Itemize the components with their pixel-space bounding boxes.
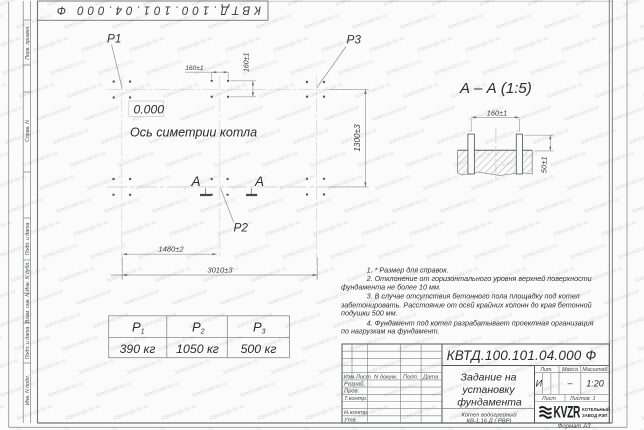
svg-text:KVZR: KVZR <box>554 403 581 421</box>
svg-text:Инв. N дубл.: Инв. N дубл. <box>25 261 31 291</box>
svg-text:160±1: 160±1 <box>243 52 250 72</box>
svg-text:Листов: Листов <box>569 396 590 402</box>
svg-text:Изм.Лист: Изм.Лист <box>344 374 371 380</box>
svg-text:Разраб.: Разраб. <box>344 382 365 388</box>
svg-text:Инв. N подл.: Инв. N подл. <box>25 375 31 405</box>
svg-text:А: А <box>191 174 201 189</box>
svg-text:1050 кг: 1050 кг <box>176 342 219 356</box>
svg-text:КВТД.100.101.04.000 Ф: КВТД.100.101.04.000 Ф <box>53 4 261 16</box>
svg-text:И: И <box>536 379 543 389</box>
svg-text:Подп.: Подп. <box>403 374 418 380</box>
svg-text:0.000: 0.000 <box>134 103 165 117</box>
svg-text:Подп. и дата: Подп. и дата <box>25 223 31 256</box>
svg-text:Н.контр.: Н.контр. <box>344 410 369 416</box>
svg-text:160±1: 160±1 <box>487 108 508 117</box>
svg-text:160±1: 160±1 <box>185 65 204 72</box>
svg-text:Перв. примен.: Перв. примен. <box>25 25 31 59</box>
svg-text:50±1: 50±1 <box>540 156 549 173</box>
svg-text:–: – <box>566 378 573 388</box>
svg-text:Справ. N: Справ. N <box>25 120 31 142</box>
svg-text:Лит.: Лит. <box>539 367 553 373</box>
svg-text:1: 1 <box>593 396 596 402</box>
svg-text:Пров.: Пров. <box>344 389 359 395</box>
svg-text:500 кг: 500 кг <box>241 342 277 356</box>
svg-text:фундамента не более 10 мм.: фундамента не более 10 мм. <box>341 282 441 291</box>
svg-text:1:20: 1:20 <box>586 379 604 389</box>
svg-text:Котел водогрейный: Котел водогрейный <box>461 412 517 419</box>
svg-text:Дата: Дата <box>422 374 439 380</box>
svg-text:P1: P1 <box>107 32 121 46</box>
svg-text:Лист: Лист <box>541 396 556 402</box>
svg-text:1480±2: 1480±2 <box>158 245 184 254</box>
svg-text:Масса: Масса <box>562 367 578 373</box>
svg-text:390 кг: 390 кг <box>120 342 156 356</box>
svg-text:КВТД.100.101.04.000 Ф: КВТД.100.101.04.000 Ф <box>447 348 597 363</box>
svg-text:КВ-1,16 Д ( РВР): КВ-1,16 Д ( РВР) <box>467 419 512 425</box>
svg-text:КОТЕЛЬНЫЙ: КОТЕЛЬНЫЙ <box>582 407 610 412</box>
svg-text:1300±3: 1300±3 <box>353 124 362 152</box>
svg-text:P3: P3 <box>347 33 362 47</box>
svg-text:Задание на: Задание на <box>461 372 517 384</box>
svg-text:1. * Размер для справок.: 1. * Размер для справок. <box>367 265 449 274</box>
svg-text:А – А (1:5): А – А (1:5) <box>459 80 532 97</box>
svg-text:N докум.: N докум. <box>374 374 397 380</box>
svg-text:подушки 500 мм.: подушки 500 мм. <box>341 309 398 318</box>
svg-text:А: А <box>254 174 264 189</box>
svg-text:3010±3: 3010±3 <box>207 265 233 274</box>
svg-text:Масштаб: Масштаб <box>582 367 608 373</box>
svg-text:по нагрузкам на фундамент.: по нагрузкам на фундамент. <box>341 327 440 336</box>
svg-text:фундамента: фундамента <box>457 396 522 408</box>
svg-text:3. В случае отсутствия бетонно: 3. В случае отсутствия бетонного пола пл… <box>367 292 580 301</box>
svg-text:Ось симетрии котла: Ось симетрии котла <box>130 126 257 140</box>
svg-text:Т.контр.: Т.контр. <box>344 396 367 402</box>
svg-text:установку: установку <box>461 384 515 396</box>
svg-text:Подп. и дата: Подп. и дата <box>25 327 31 360</box>
svg-text:Взам. инв. N: Взам. инв. N <box>25 293 31 323</box>
svg-text:Утв.: Утв. <box>343 417 357 423</box>
svg-text:Формат А3: Формат А3 <box>558 424 591 430</box>
svg-text:ЗАВОД РЭП: ЗАВОД РЭП <box>582 413 607 418</box>
svg-text:P2: P2 <box>234 221 249 235</box>
